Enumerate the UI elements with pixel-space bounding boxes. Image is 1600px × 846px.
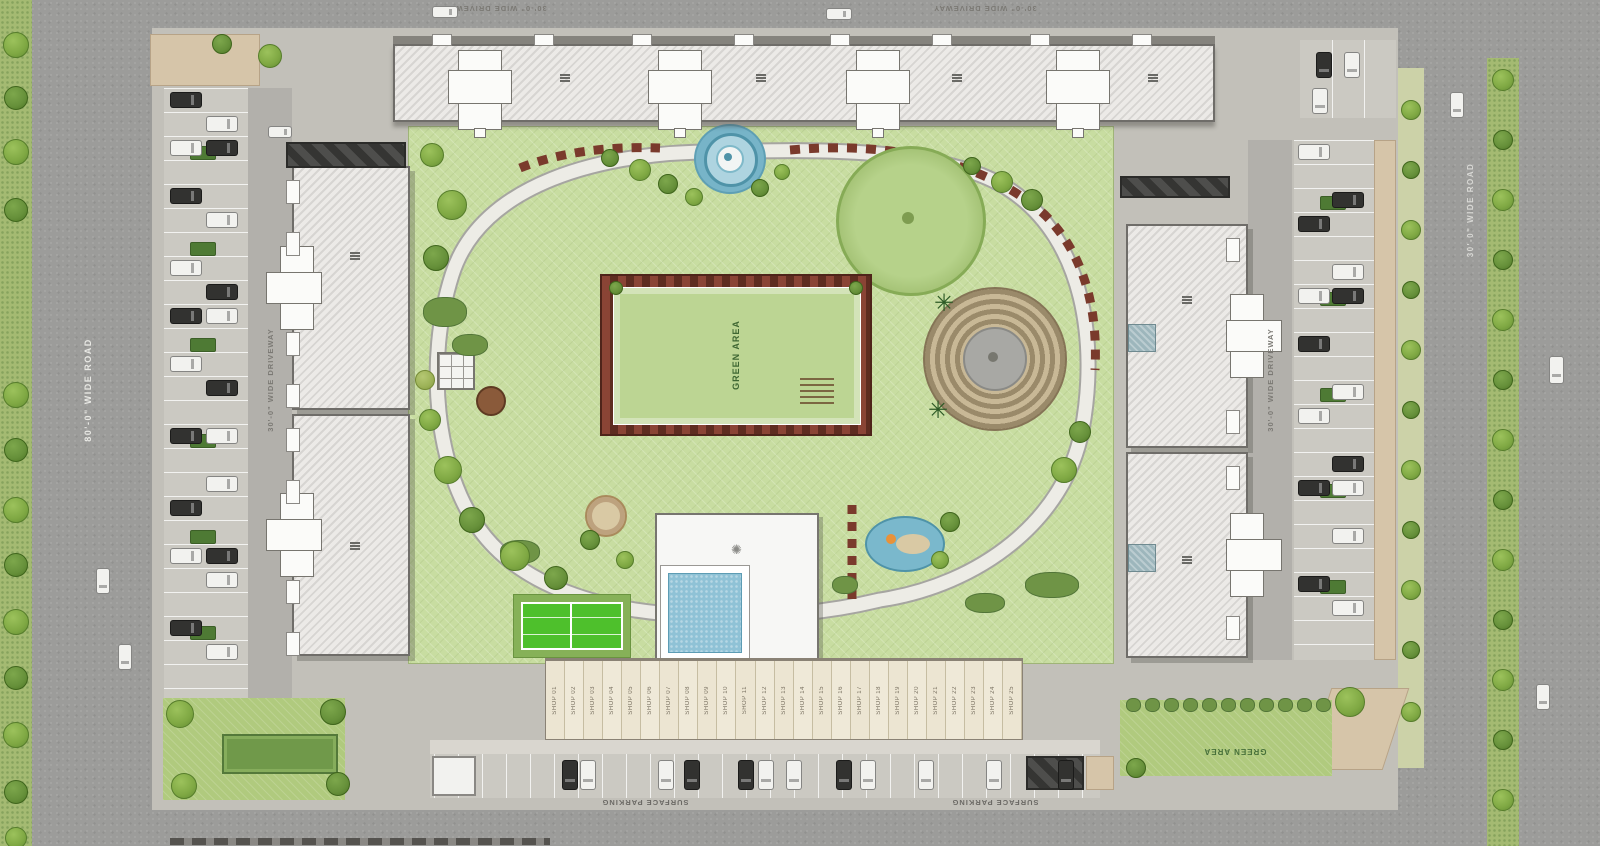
shop-unit: SHOP 18 bbox=[870, 661, 889, 739]
shop-label: SHOP 16 bbox=[838, 686, 844, 715]
shop-label: SHOP 21 bbox=[933, 686, 939, 715]
fountain-jet bbox=[724, 153, 732, 161]
gazebo bbox=[476, 386, 506, 416]
shop-label: SHOP 05 bbox=[628, 686, 634, 715]
shop-unit: SHOP 19 bbox=[889, 661, 908, 739]
south-gate bbox=[1026, 756, 1084, 790]
shop-unit: SHOP 09 bbox=[698, 661, 717, 739]
clubhouse-skylight-icon: ✺ bbox=[731, 542, 742, 558]
shop-unit: SHOP 13 bbox=[775, 661, 794, 739]
play-circle bbox=[585, 495, 627, 537]
surface-parking-label-1: SURFACE PARKING bbox=[575, 798, 715, 807]
shop-unit: SHOP 17 bbox=[851, 661, 870, 739]
lift-core bbox=[1128, 544, 1156, 572]
shop-unit: SHOP 23 bbox=[965, 661, 984, 739]
shop-label: SHOP 13 bbox=[781, 686, 787, 715]
top-building-row bbox=[393, 44, 1215, 122]
tennis-service-line bbox=[521, 617, 623, 618]
shop-unit: SHOP 20 bbox=[908, 661, 927, 739]
shop-label: SHOP 23 bbox=[971, 686, 977, 715]
garden-benches bbox=[800, 378, 834, 404]
shop-label: SHOP 01 bbox=[552, 686, 558, 715]
entrance-gate-right bbox=[1120, 176, 1230, 198]
shop-label: SHOP 24 bbox=[990, 686, 996, 715]
shop-label: SHOP 04 bbox=[609, 686, 615, 715]
circular-lawn-center bbox=[902, 212, 914, 224]
trellis-structure bbox=[437, 352, 475, 390]
shops-row: SHOP 01SHOP 02SHOP 03SHOP 04SHOP 05SHOP … bbox=[545, 658, 1023, 740]
shop-unit: SHOP 07 bbox=[660, 661, 679, 739]
pond-island bbox=[896, 534, 930, 554]
surface-parking-label-2: SURFACE PARKING bbox=[925, 798, 1065, 807]
swimming-pool bbox=[668, 573, 742, 653]
shop-unit: SHOP 22 bbox=[946, 661, 965, 739]
amphitheatre-center bbox=[988, 352, 998, 362]
palm-tree-icon: ✳ bbox=[934, 289, 954, 318]
koi-icon bbox=[886, 534, 896, 544]
shop-unit: SHOP 11 bbox=[736, 661, 755, 739]
shop-label: SHOP 07 bbox=[666, 686, 672, 715]
road-80-label: 80'-0" WIDE ROAD bbox=[0, 370, 178, 410]
shop-unit: SHOP 01 bbox=[546, 661, 565, 739]
shop-unit: SHOP 05 bbox=[622, 661, 641, 739]
shop-label: SHOP 06 bbox=[647, 686, 653, 715]
shop-label: SHOP 03 bbox=[590, 686, 596, 715]
shop-unit: SHOP 24 bbox=[984, 661, 1003, 739]
tennis-net-line bbox=[570, 602, 572, 650]
shop-label: SHOP 10 bbox=[723, 686, 729, 715]
shop-unit: SHOP 15 bbox=[813, 661, 832, 739]
road-30-label: 30'-0" WIDE ROAD bbox=[1390, 190, 1550, 230]
utility-block bbox=[432, 756, 476, 796]
shop-unit: SHOP 08 bbox=[679, 661, 698, 739]
shop-unit: SHOP 03 bbox=[584, 661, 603, 739]
top-driveway-label-2: 30'-0" WIDE DRIVEWAY bbox=[915, 4, 1055, 13]
shop-label: SHOP 22 bbox=[952, 686, 958, 715]
lift-core bbox=[1128, 324, 1156, 352]
shop-label: SHOP 02 bbox=[571, 686, 577, 715]
shop-unit: SHOP 02 bbox=[565, 661, 584, 739]
right-driveway-label: 30'-0" WIDE DRIVEWAY bbox=[1180, 360, 1360, 400]
top-driveway-label-1: 30'-0" WIDE DRIVEWAY bbox=[425, 4, 565, 13]
green-area-label-center: GREEN AREA bbox=[681, 341, 791, 369]
shop-unit: SHOP 10 bbox=[717, 661, 736, 739]
shop-unit: SHOP 14 bbox=[794, 661, 813, 739]
entrance-gate-left bbox=[286, 142, 406, 168]
tennis-service-line bbox=[521, 634, 623, 635]
shop-unit: SHOP 04 bbox=[603, 661, 622, 739]
shop-label: SHOP 18 bbox=[876, 686, 882, 715]
shop-label: SHOP 19 bbox=[895, 686, 901, 715]
left-driveway-label: 30'-0" WIDE DRIVEWAY bbox=[180, 360, 360, 400]
shop-label: SHOP 17 bbox=[857, 686, 863, 715]
shop-unit: SHOP 25 bbox=[1003, 661, 1022, 739]
shop-label: SHOP 14 bbox=[800, 686, 806, 715]
tennis-court bbox=[521, 602, 623, 650]
site-master-plan: GREEN AREA ✳ ✳ GREEN AREA ✺ bbox=[0, 0, 1600, 846]
shop-label: SHOP 25 bbox=[1009, 686, 1015, 715]
shop-unit: SHOP 16 bbox=[832, 661, 851, 739]
shop-unit: SHOP 21 bbox=[927, 661, 946, 739]
shop-label: SHOP 15 bbox=[819, 686, 825, 715]
palm-tree-icon: ✳ bbox=[928, 396, 948, 425]
shop-label: SHOP 20 bbox=[914, 686, 920, 715]
shop-label: SHOP 11 bbox=[742, 686, 748, 714]
shop-label: SHOP 08 bbox=[685, 686, 691, 715]
left-building-b bbox=[292, 414, 410, 656]
shop-unit: SHOP 06 bbox=[641, 661, 660, 739]
shop-label: SHOP 09 bbox=[704, 686, 710, 715]
shop-unit: SHOP 12 bbox=[756, 661, 775, 739]
shop-label: SHOP 12 bbox=[762, 686, 768, 715]
